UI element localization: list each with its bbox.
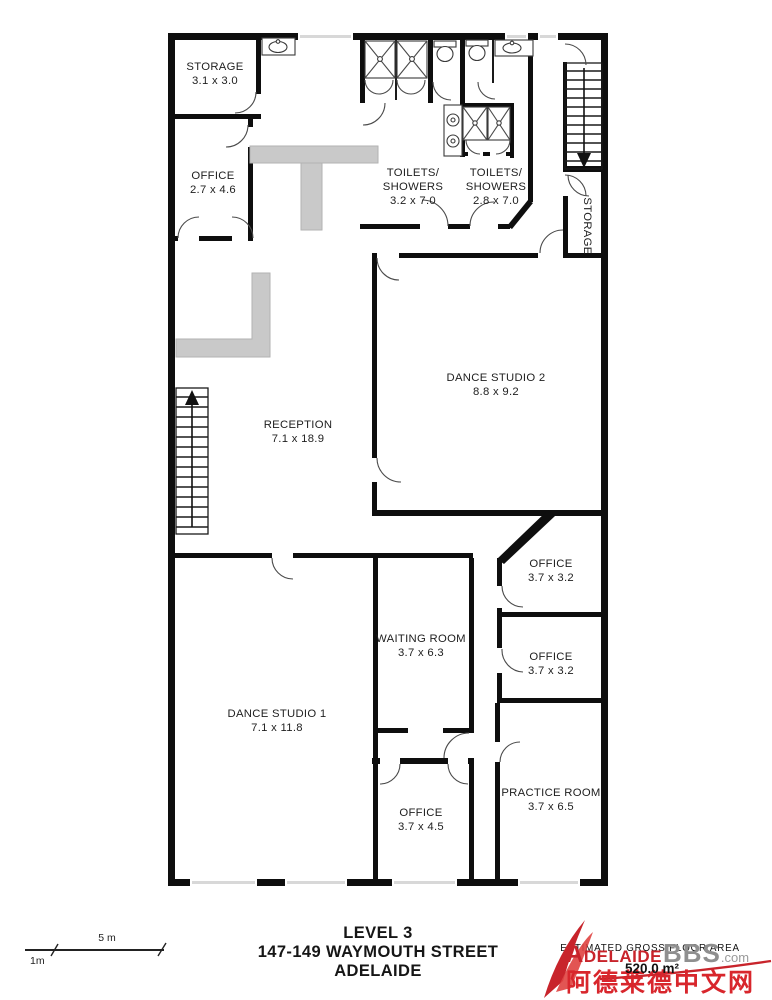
room-label-toilets-2-line1: TOILETS/ xyxy=(470,167,523,179)
room-dims-office-r2: 3.7 x 3.2 xyxy=(528,665,574,677)
floor-area-and-watermark: ESTIMATED GROSS FLOOR AREA AdelaideBBS.c… xyxy=(544,920,771,998)
sink-icon xyxy=(262,38,295,55)
title-street: 147-149 WAYMOUTH STREET xyxy=(258,943,499,961)
room-label-reception: RECEPTION xyxy=(264,419,333,431)
window xyxy=(298,33,353,40)
window xyxy=(518,879,580,886)
scale-bar: 5 m 1m xyxy=(25,932,166,967)
room-label-office-bottom: OFFICE xyxy=(399,807,442,819)
room-dims-toilets-2: 2.8 x 7.0 xyxy=(473,195,519,207)
room-label-storage-top: STORAGE xyxy=(186,61,243,73)
toilet-icon xyxy=(434,41,456,62)
room-dims-storage-top: 3.1 x 3.0 xyxy=(192,75,238,87)
toilet-icon xyxy=(466,40,488,61)
floor-plan-page: STORAGE 3.1 x 3.0 OFFICE 2.7 x 4.6 TOILE… xyxy=(0,0,772,1000)
room-label-dance-studio-2: DANCE STUDIO 2 xyxy=(447,372,546,384)
room-label-office-r2: OFFICE xyxy=(529,651,572,663)
scale-label-1m: 1m xyxy=(30,955,45,967)
outer-walls xyxy=(168,33,608,886)
window xyxy=(285,879,347,886)
room-label-waiting-room: WAITING ROOM xyxy=(376,633,466,645)
shower-stall-icon xyxy=(463,107,487,140)
basin-icon xyxy=(444,105,462,156)
room-dims-office-bottom: 3.7 x 4.5 xyxy=(398,821,444,833)
corridor-partition-top xyxy=(250,146,378,163)
room-label-office-r1: OFFICE xyxy=(529,558,572,570)
sink-icon xyxy=(495,40,533,56)
window xyxy=(392,879,457,886)
room-dims-practice-room: 3.7 x 6.5 xyxy=(528,801,574,813)
interior-walls xyxy=(168,40,608,880)
scale-label-5m: 5 m xyxy=(98,932,116,944)
window xyxy=(538,33,558,40)
corridor-partition-stem xyxy=(301,163,322,230)
window xyxy=(190,879,257,886)
room-label-toilets-1-line2: SHOWERS xyxy=(383,181,444,193)
plan-title: LEVEL 3 147-149 WAYMOUTH STREET ADELAIDE xyxy=(258,924,499,980)
room-dims-toilets-1: 3.2 x 7.0 xyxy=(390,195,436,207)
shower-stall-icon xyxy=(488,107,510,140)
room-dims-reception: 7.1 x 18.9 xyxy=(272,433,325,445)
brand-tld: .com xyxy=(721,950,749,965)
window xyxy=(505,33,528,40)
room-label-storage-side: STORAGE xyxy=(581,197,593,254)
room-dims-waiting-room: 3.7 x 6.3 xyxy=(398,647,444,659)
room-dims-dance-studio-1: 7.1 x 11.8 xyxy=(251,722,303,734)
staircase-down xyxy=(565,63,602,169)
room-label-toilets-2-line2: SHOWERS xyxy=(466,181,527,193)
staircase-up xyxy=(176,388,208,534)
room-label-dance-studio-1: DANCE STUDIO 1 xyxy=(228,708,327,720)
room-label-toilets-1-line1: TOILETS/ xyxy=(387,167,440,179)
floor-plan-drawing: STORAGE 3.1 x 3.0 OFFICE 2.7 x 4.6 TOILE… xyxy=(0,0,772,1000)
shower-stall-icon xyxy=(397,41,427,78)
room-dims-office-r1: 3.7 x 3.2 xyxy=(528,572,574,584)
floor-area-value: 520.0 m² xyxy=(625,961,680,976)
title-city: ADELAIDE xyxy=(334,962,422,980)
reception-partition xyxy=(176,273,270,357)
room-dims-dance-studio-2: 8.8 x 9.2 xyxy=(473,386,519,398)
title-level: LEVEL 3 xyxy=(343,924,412,942)
shower-stall-icon xyxy=(365,41,395,78)
room-label-practice-room: PRACTICE ROOM xyxy=(501,787,600,799)
room-dims-office-top: 2.7 x 4.6 xyxy=(190,184,236,196)
room-label-office-top: OFFICE xyxy=(191,170,234,182)
